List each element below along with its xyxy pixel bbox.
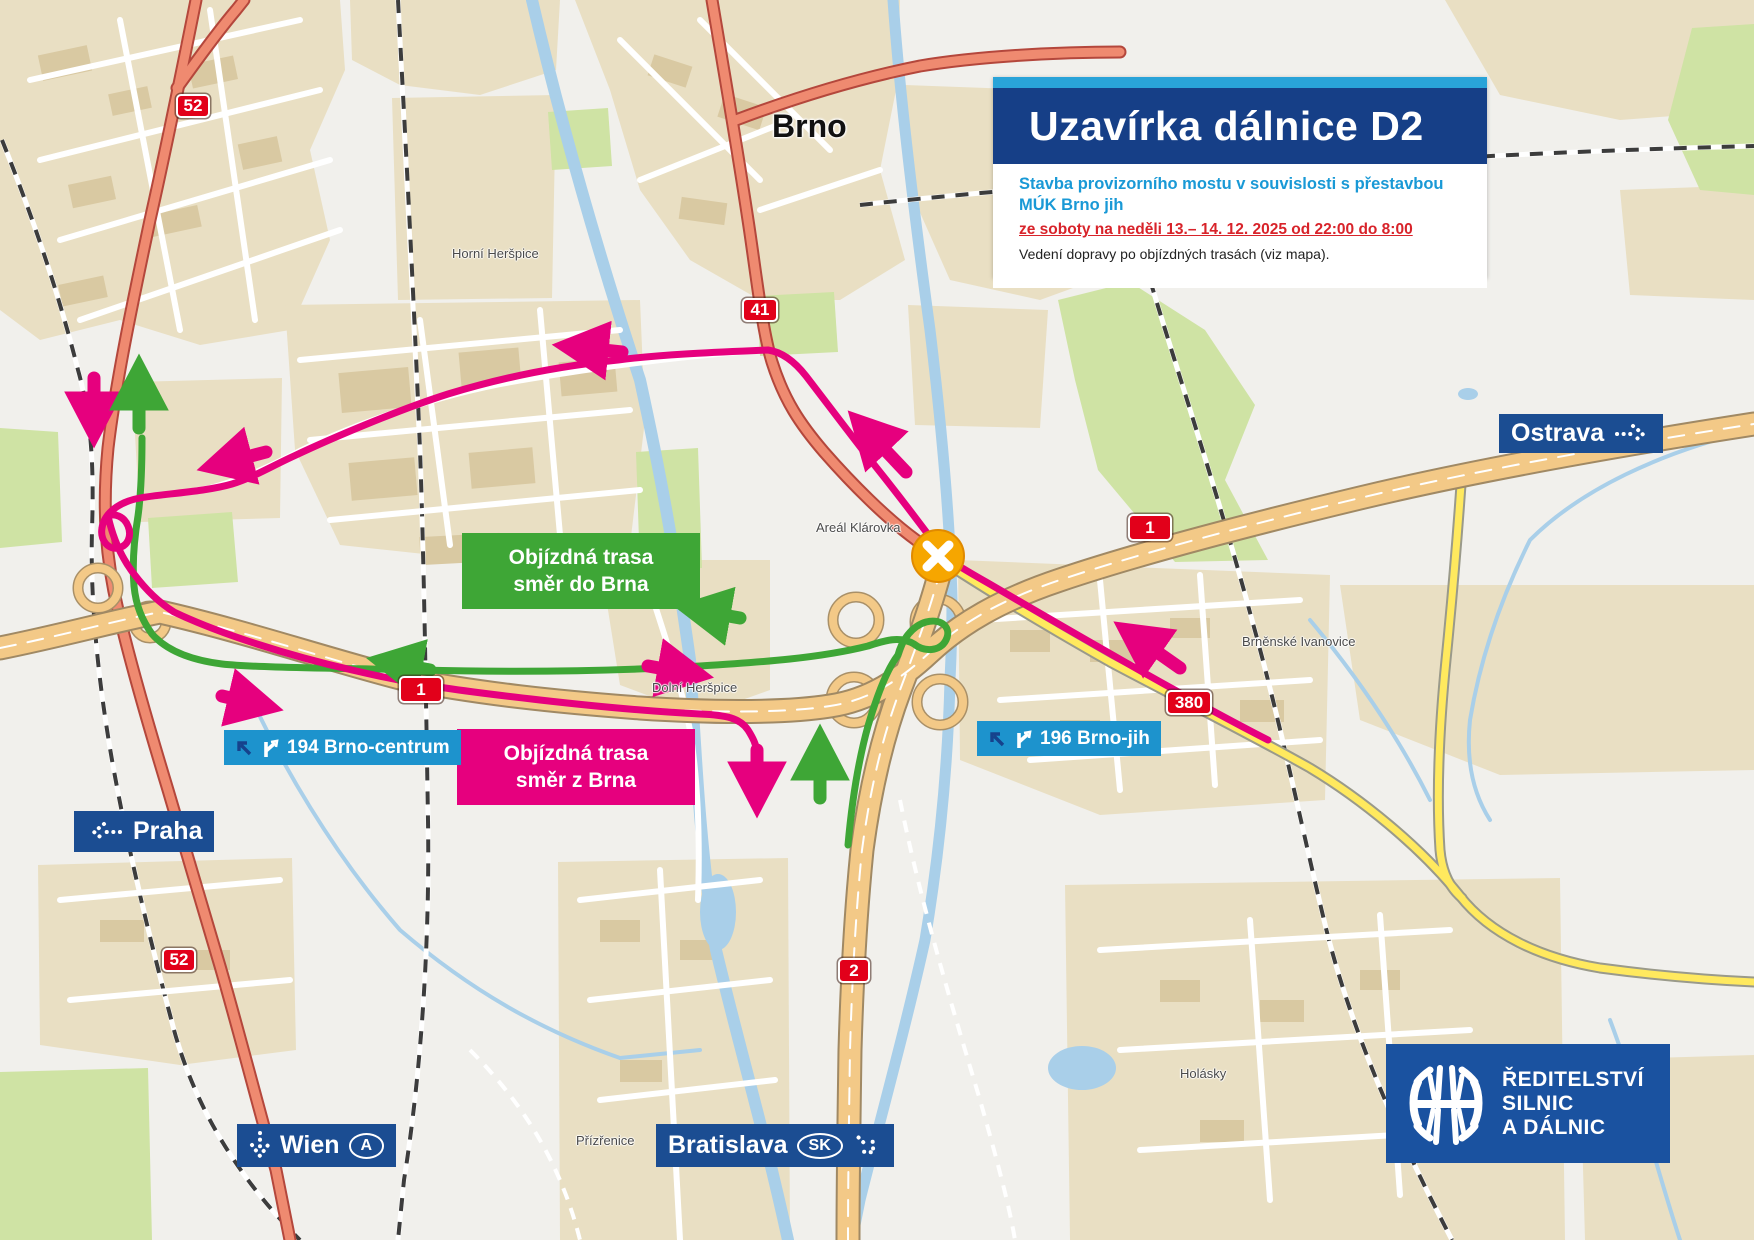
up-left-arrow-icon [235, 739, 253, 757]
place-label-areal-klarovka: Areál Klárovka [816, 520, 901, 535]
detour-from-brno-line2: směr z Brna [516, 767, 636, 794]
dotted-arrow-down-right-icon [852, 1131, 882, 1161]
detour-box-from-brno: Objízdná trasa směr z Brna [457, 729, 695, 805]
magenta-arrow-east-2 [648, 666, 682, 672]
exit-label-194: 194 Brno-centrum [224, 730, 461, 765]
road-badge-380: 380 [1166, 690, 1212, 715]
exit-196-text: 196 Brno-jih [1040, 728, 1150, 750]
dotted-arrow-down-icon [249, 1129, 271, 1163]
place-label-prizrenice: Přízřenice [576, 1133, 635, 1148]
exit-junction-icon [260, 738, 280, 758]
dotted-arrow-left-icon [86, 821, 124, 843]
city-label-brno: Brno [772, 108, 847, 145]
closure-date: ze soboty na neděli 13.– 14. 12. 2025 od… [1019, 216, 1475, 243]
country-badge-austria: A [349, 1133, 385, 1159]
rsd-emblem-icon [1404, 1062, 1488, 1146]
wien-label: Wien [280, 1131, 340, 1160]
country-badge-slovakia: SK [797, 1133, 843, 1159]
panel-subtitle-line2: MÚK Brno jih [1019, 195, 1475, 216]
direction-sign-wien: Wien A [237, 1124, 396, 1167]
closure-marker [912, 530, 964, 582]
map-screenshot: Uzavírka dálnice D2 Stavba provizorního … [0, 0, 1754, 1240]
direction-sign-praha: Praha [74, 811, 214, 852]
panel-body: Stavba provizorního mostu v souvislosti … [993, 164, 1487, 288]
direction-sign-bratislava: Bratislava SK [656, 1124, 894, 1167]
place-label-holasky: Holásky [1180, 1066, 1226, 1081]
up-left-arrow-icon [988, 730, 1006, 748]
panel-accent-strip [993, 77, 1487, 88]
detour-box-to-brno: Objízdná trasa směr do Brna [462, 533, 700, 609]
rsd-logo: ŘEDITELSTVÍ SILNIC A DÁLNIC [1386, 1044, 1670, 1163]
detour-to-brno-line2: směr do Brna [513, 571, 648, 598]
panel-subtitle-line1: Stavba provizorního mostu v souvislosti … [1019, 174, 1475, 195]
road-badge-1-west: 1 [399, 676, 443, 703]
panel-header: Uzavírka dálnice D2 [993, 88, 1487, 164]
place-label-brnenske-ivanovice: Brněnské Ivanovice [1242, 634, 1355, 649]
bratislava-label: Bratislava [668, 1131, 788, 1160]
magenta-arrow-west-1 [584, 348, 622, 352]
green-arrow-west-2 [398, 664, 430, 670]
road-badge-41: 41 [742, 298, 778, 322]
praha-label: Praha [133, 817, 202, 846]
road-badge-52-north: 52 [176, 94, 210, 118]
detour-to-brno-line1: Objízdná trasa [509, 544, 654, 571]
panel-note: Vedení dopravy po objízdných trasách (vi… [1019, 243, 1475, 266]
page-title: Uzavírka dálnice D2 [1029, 103, 1424, 150]
exit-194-text: 194 Brno-centrum [287, 737, 450, 759]
exit-label-196: 196 Brno-jih [977, 721, 1161, 756]
ostrava-label: Ostrava [1511, 419, 1604, 448]
exit-junction-icon [1013, 729, 1033, 749]
road-badge-1-east: 1 [1128, 514, 1172, 541]
magenta-arrow-east-1 [222, 696, 252, 703]
closure-info-panel: Uzavírka dálnice D2 Stavba provizorního … [993, 77, 1487, 278]
direction-sign-ostrava: Ostrava [1499, 414, 1663, 453]
rsd-logo-text: ŘEDITELSTVÍ SILNIC A DÁLNIC [1502, 1068, 1644, 1140]
dotted-arrow-right-icon [1613, 423, 1651, 445]
green-arrow-west-1 [706, 612, 740, 618]
place-label-dolni-herspice: Dolní Heršpice [652, 680, 737, 695]
place-label-horni-herspice: Horní Heršpice [452, 246, 539, 261]
detour-from-brno-line1: Objízdná trasa [504, 740, 649, 767]
road-badge-2: 2 [838, 958, 870, 983]
road-badge-52-south: 52 [162, 948, 196, 972]
